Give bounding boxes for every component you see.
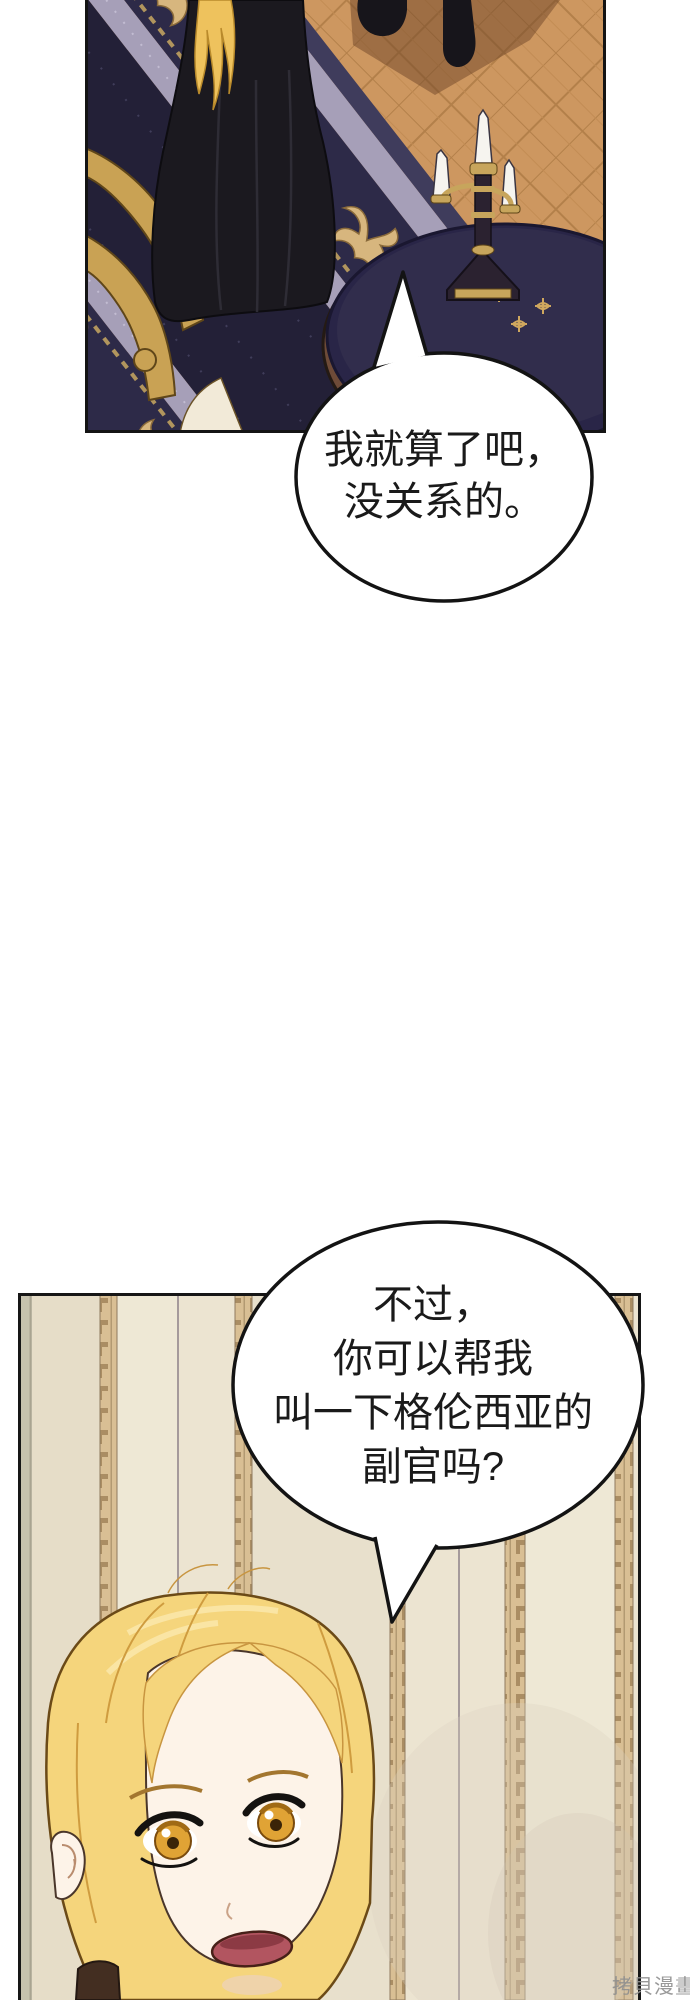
bubble-line: 叫一下格伦西亚的 [263,1386,603,1440]
bubble-line: 我就算了吧， [304,424,584,476]
bubble-line: 你可以帮我 [263,1332,603,1386]
bubble-line: 副官吗? [263,1440,603,1494]
collar [76,1961,120,2000]
bubble-line: 不过， [263,1278,603,1332]
bubble-line: 没关系的。 [304,476,584,528]
comic-page: 我就算了吧， 没关系的。 [0,0,690,2000]
bubble-tail-down [375,1537,437,1622]
speech-bubble-1-text: 我就算了吧， 没关系的。 [304,424,584,528]
site-watermark: 拷貝漫畫 [612,1970,690,1999]
bubble-tail-up [374,272,427,367]
speech-bubble-2-text: 不过， 你可以帮我 叫一下格伦西亚的 副官吗? [263,1278,603,1494]
